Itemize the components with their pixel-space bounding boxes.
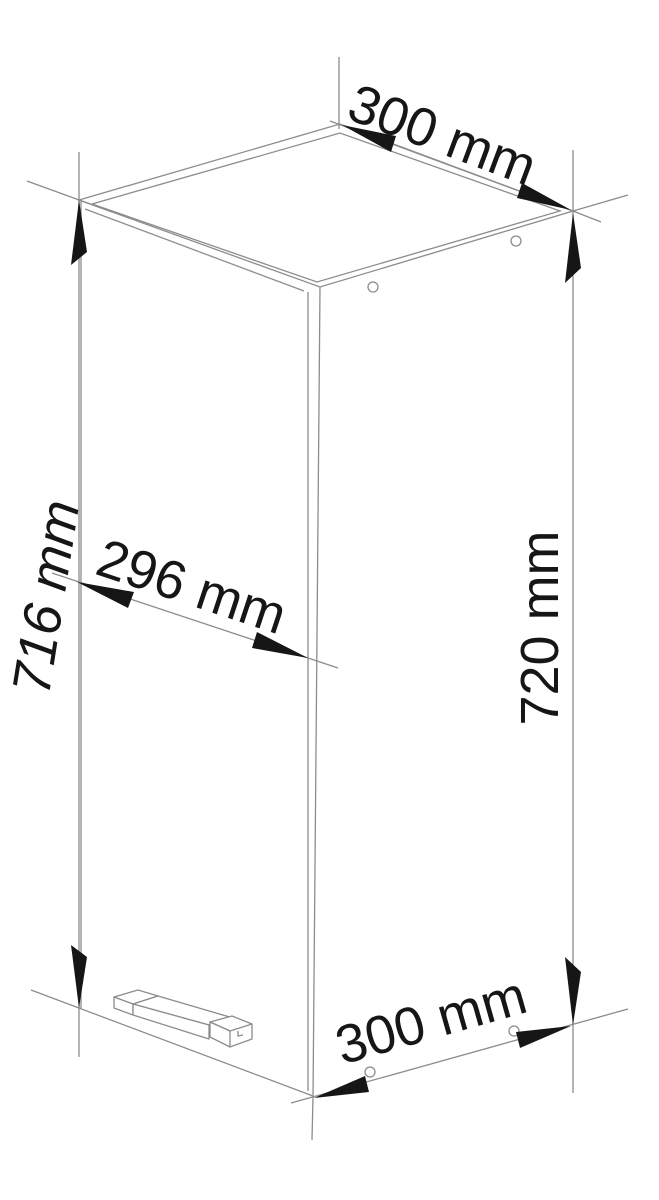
- arrow-door-height-bottom: [71, 945, 87, 1008]
- side-hole: [368, 282, 378, 292]
- door-top-edge: [85, 209, 304, 291]
- side-hole: [511, 236, 521, 246]
- extension-line-top-left: [27, 181, 112, 212]
- label-door-height: 716 mm: [1, 496, 91, 698]
- extension-line-top-right: [573, 195, 628, 211]
- arrow-bottom-depth-right: [516, 1026, 571, 1048]
- dimension-labels: 300 mm 296 mm 716 mm 720 mm 300 mm: [1, 73, 570, 1076]
- dimension-arrows: [71, 125, 581, 1098]
- arrow-bottom-depth-left: [314, 1076, 369, 1098]
- label-door-width: 296 mm: [90, 528, 294, 646]
- cabinet-front-right-edge: [312, 287, 320, 1140]
- label-top-width: 300 mm: [340, 73, 544, 198]
- handle-right-mount-detail: [238, 1031, 243, 1036]
- arrow-side-height-top: [565, 213, 581, 283]
- arrow-side-height-bottom: [565, 957, 581, 1025]
- label-bottom-depth: 300 mm: [329, 965, 533, 1076]
- dim-top-overshoot: [573, 211, 601, 222]
- label-side-height: 720 mm: [510, 530, 570, 725]
- cabinet-dimension-drawing: 300 mm 296 mm 716 mm 720 mm 300 mm: [0, 0, 659, 1200]
- door-handle: [114, 990, 252, 1047]
- arrow-door-height-top: [71, 200, 87, 265]
